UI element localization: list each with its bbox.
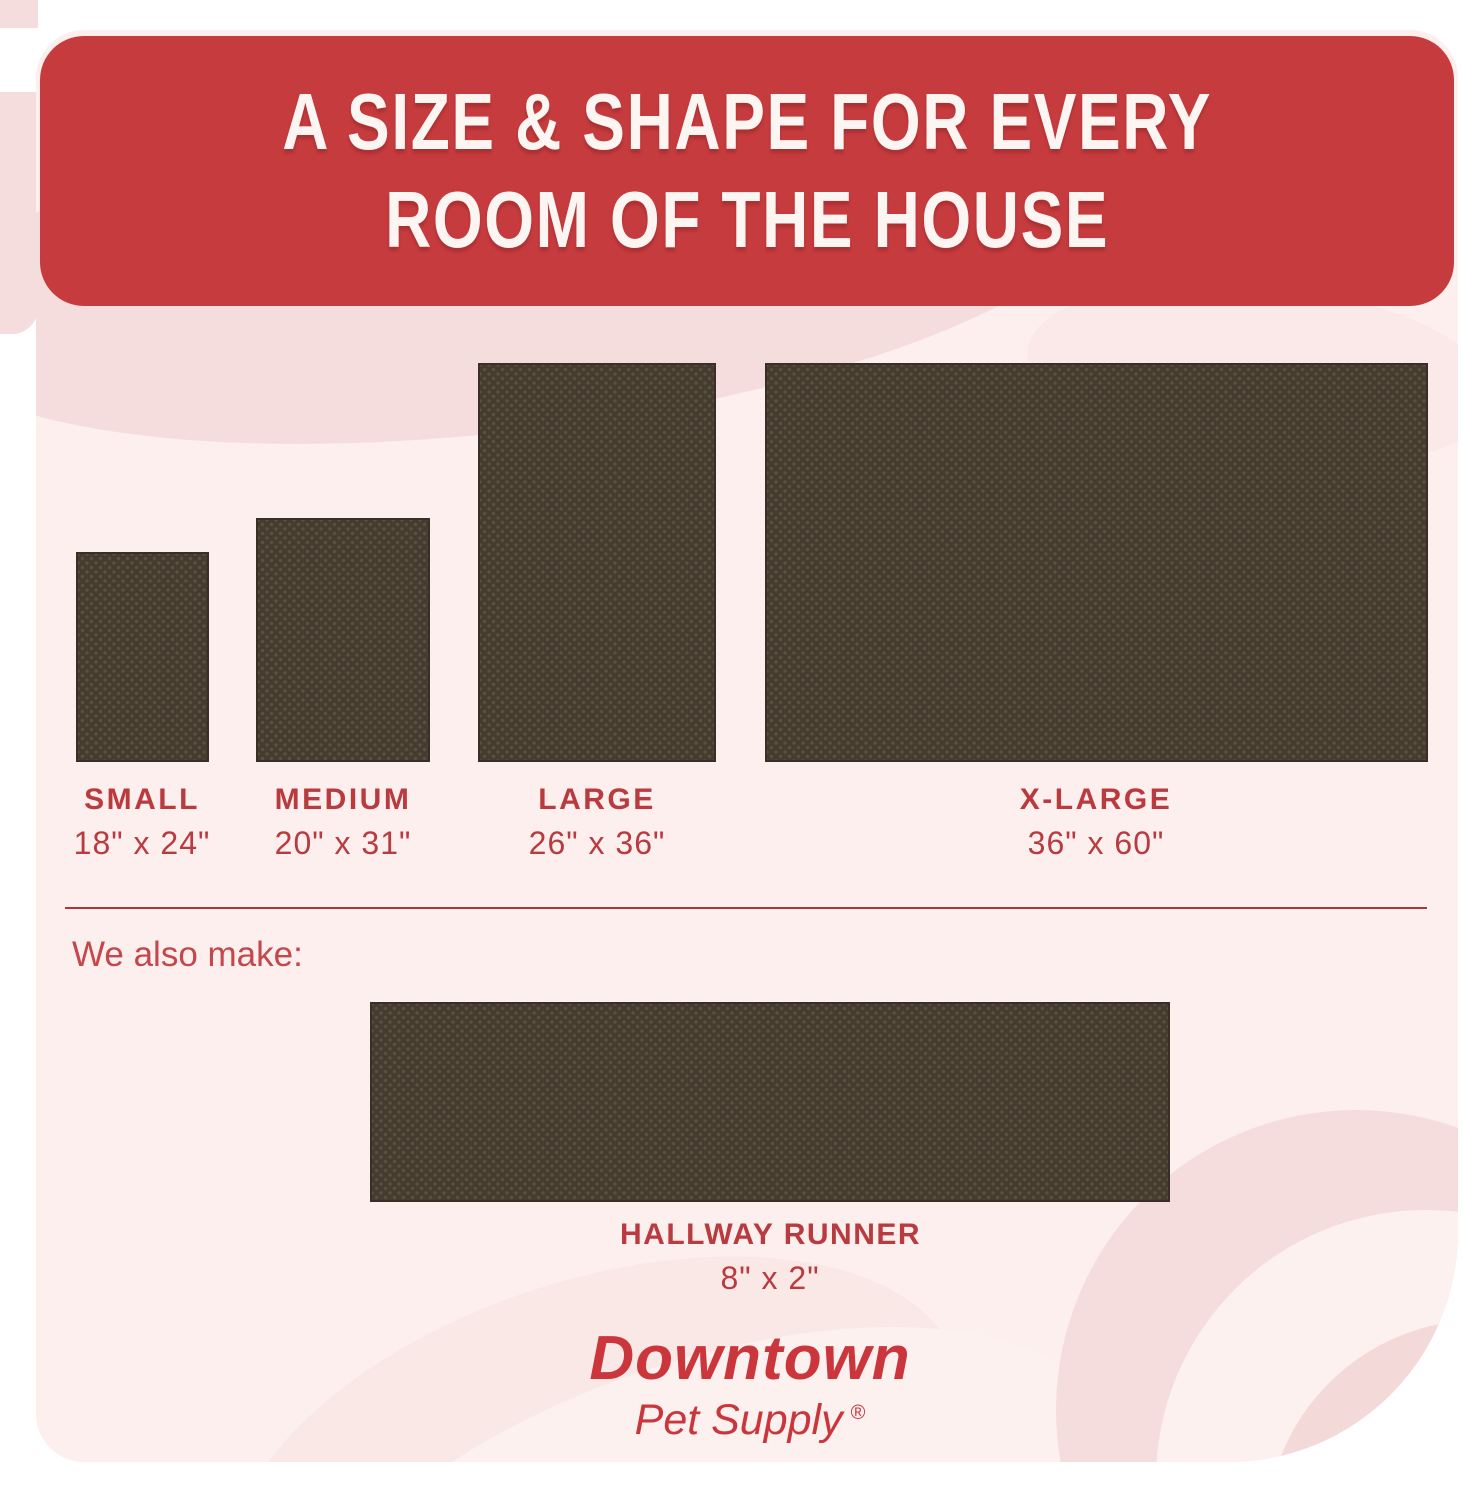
mat-swatch-large bbox=[478, 363, 716, 762]
mat-swatch-xlarge bbox=[765, 363, 1428, 762]
runner-name: HALLWAY RUNNER bbox=[620, 1218, 920, 1252]
page-title-line2: ROOM OF THE HOUSE bbox=[385, 175, 1109, 264]
size-name: X-LARGE bbox=[946, 783, 1246, 817]
runner-caption: HALLWAY RUNNER 8" x 2" bbox=[620, 1218, 920, 1297]
size-caption-xlarge: X-LARGE 36" x 60" bbox=[946, 783, 1246, 862]
size-dimensions: 26" x 36" bbox=[447, 825, 747, 862]
registered-trademark-symbol: ® bbox=[851, 1402, 866, 1424]
header-banner: A SIZE & SHAPE FOR EVERY ROOM OF THE HOU… bbox=[40, 36, 1454, 306]
decor-edge-pink-left bbox=[0, 92, 38, 334]
runner-dimensions: 8" x 2" bbox=[620, 1260, 920, 1297]
section-divider bbox=[65, 907, 1427, 909]
brand-name: Downtown bbox=[525, 1323, 975, 1394]
mat-swatch-small bbox=[76, 552, 209, 762]
brand-logo: Downtown Pet Supply® bbox=[525, 1323, 975, 1445]
page-title-line1: A SIZE & SHAPE FOR EVERY bbox=[282, 77, 1212, 166]
content-panel: A SIZE & SHAPE FOR EVERY ROOM OF THE HOU… bbox=[36, 30, 1458, 1462]
decor-edge-pink-top bbox=[0, 0, 38, 28]
size-guide-infographic: A SIZE & SHAPE FOR EVERY ROOM OF THE HOU… bbox=[0, 0, 1463, 1500]
size-caption-large: LARGE 26" x 36" bbox=[447, 783, 747, 862]
size-name: LARGE bbox=[447, 783, 747, 817]
size-dimensions: 36" x 60" bbox=[946, 825, 1246, 862]
mat-swatch-medium bbox=[256, 518, 430, 762]
mat-swatch-hallway-runner bbox=[370, 1002, 1170, 1202]
page-title: A SIZE & SHAPE FOR EVERY ROOM OF THE HOU… bbox=[282, 73, 1212, 268]
brand-tagline: Pet Supply® bbox=[525, 1396, 975, 1445]
brand-tagline-text: Pet Supply bbox=[635, 1396, 843, 1444]
also-make-label: We also make: bbox=[72, 935, 303, 975]
